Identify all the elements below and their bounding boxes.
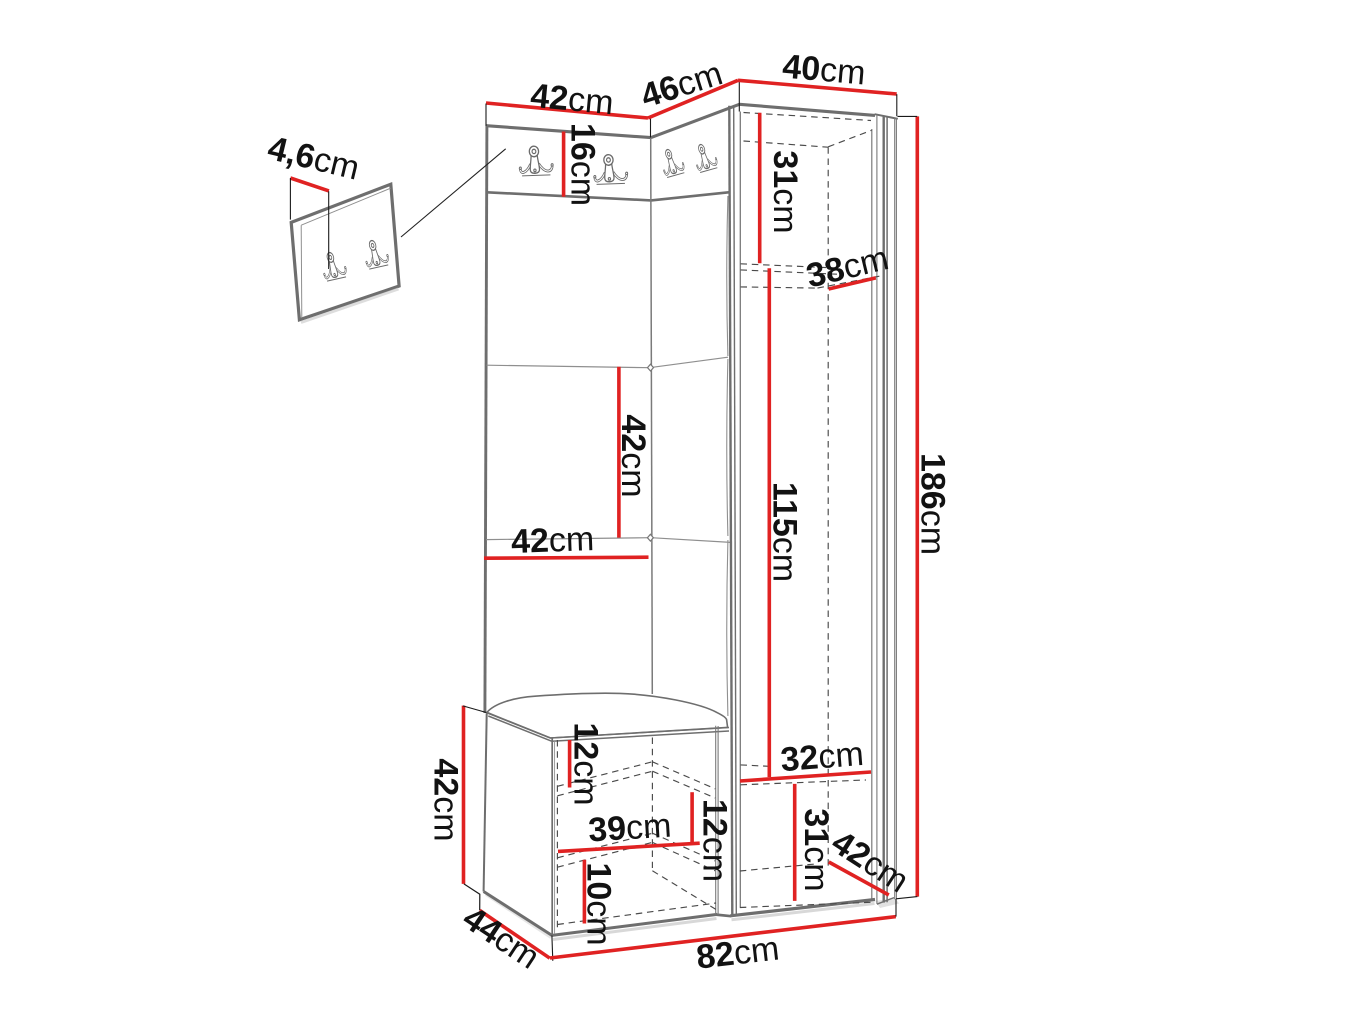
svg-text:10cm: 10cm (580, 862, 618, 945)
svg-text:31cm: 31cm (766, 150, 804, 233)
svg-text:40cm: 40cm (781, 47, 867, 92)
svg-text:186cm: 186cm (914, 453, 952, 555)
svg-text:42cm: 42cm (427, 758, 465, 841)
svg-text:32cm: 32cm (779, 735, 865, 779)
svg-text:16cm: 16cm (564, 123, 602, 206)
svg-text:39cm: 39cm (587, 807, 672, 850)
svg-text:115cm: 115cm (766, 482, 804, 582)
svg-text:82cm: 82cm (694, 929, 781, 976)
svg-text:12cm: 12cm (567, 722, 605, 805)
svg-text:12cm: 12cm (696, 799, 734, 882)
svg-text:42cm: 42cm (529, 77, 615, 123)
svg-text:42cm: 42cm (510, 520, 594, 561)
svg-text:42cm: 42cm (825, 823, 915, 900)
svg-text:38cm: 38cm (803, 239, 893, 295)
svg-text:46cm: 46cm (636, 54, 727, 115)
svg-text:42cm: 42cm (614, 414, 652, 497)
svg-text:44cm: 44cm (456, 899, 546, 977)
svg-text:4,6cm: 4,6cm (264, 129, 363, 188)
